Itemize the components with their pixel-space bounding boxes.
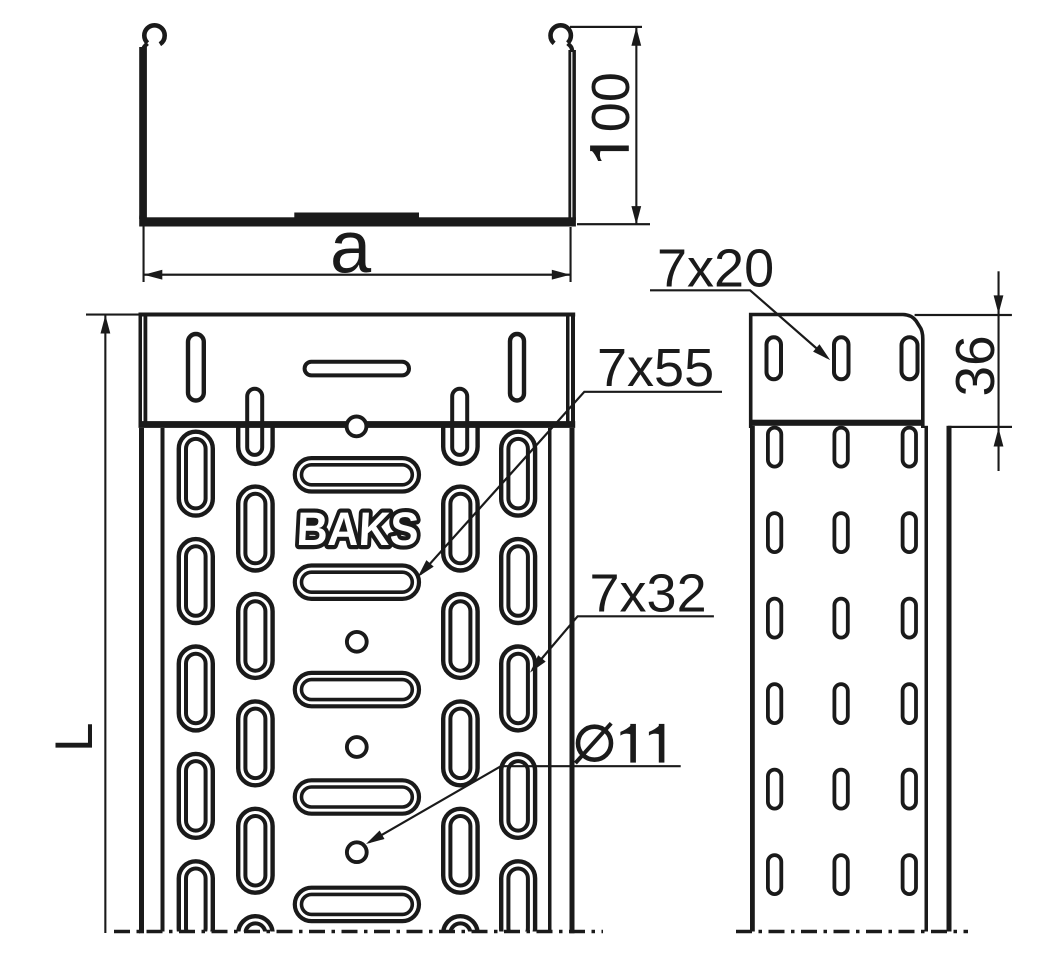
svg-text:00: 00 bbox=[581, 72, 641, 132]
svg-text:a: a bbox=[330, 206, 372, 289]
svg-text:7x32: 7x32 bbox=[590, 563, 707, 623]
svg-text:36: 36 bbox=[944, 335, 1006, 396]
svg-text:BAKS: BAKS bbox=[295, 502, 420, 555]
svg-text:7x55: 7x55 bbox=[597, 338, 714, 398]
svg-text:L: L bbox=[45, 723, 104, 752]
